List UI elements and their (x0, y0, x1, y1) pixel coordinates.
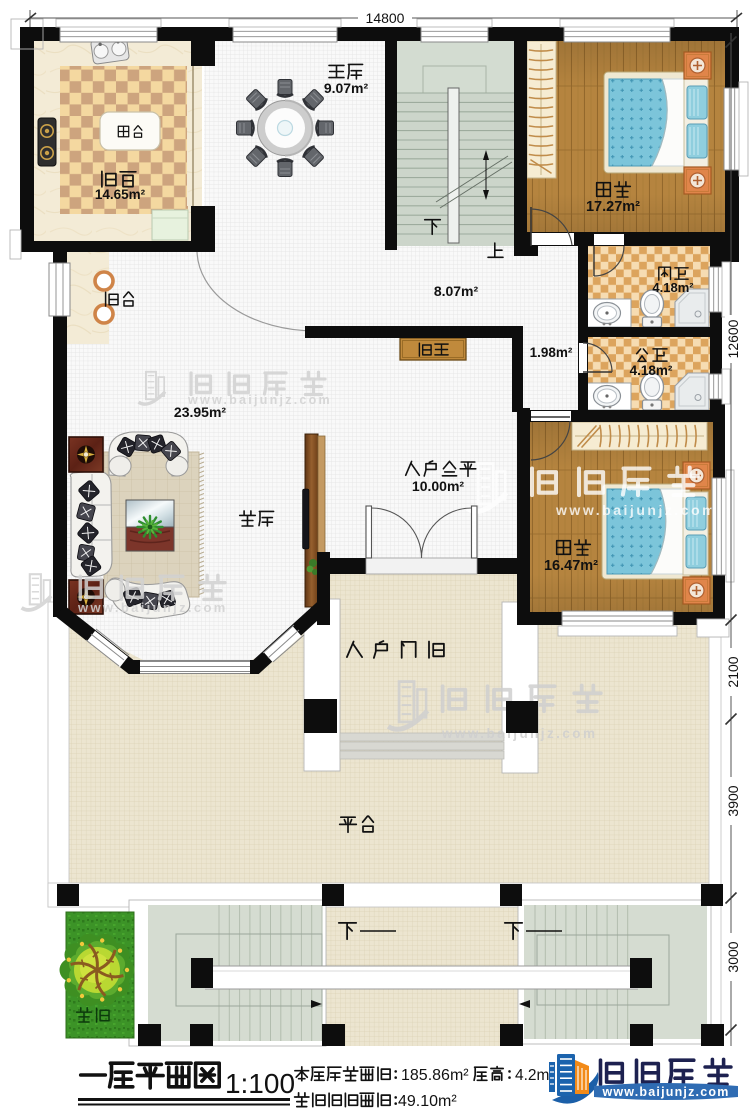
svg-text:16.47m²: 16.47m² (544, 558, 598, 574)
svg-text:14.65m²: 14.65m² (95, 187, 146, 202)
svg-text:www.baijunjz.com: www.baijunjz.com (601, 1085, 729, 1099)
svg-text:4.18m²: 4.18m² (630, 363, 673, 378)
svg-text:12600: 12600 (725, 319, 741, 358)
svg-text:1.98m²: 1.98m² (530, 345, 573, 360)
svg-text:3000: 3000 (725, 941, 741, 972)
svg-text:185.86m²: 185.86m² (401, 1067, 469, 1084)
svg-text:2100: 2100 (725, 656, 741, 687)
svg-text:www.baijunjz.com: www.baijunjz.com (187, 393, 332, 407)
svg-text:www.baijunjz.com: www.baijunjz.com (77, 600, 228, 615)
svg-text:4.18m²: 4.18m² (652, 280, 694, 295)
svg-text:9.07m²: 9.07m² (324, 80, 369, 96)
svg-text:www.baijunjz.com: www.baijunjz.com (555, 502, 717, 518)
svg-text:14800: 14800 (366, 10, 405, 26)
svg-text:3900: 3900 (725, 785, 741, 816)
svg-text:8.07m²: 8.07m² (434, 283, 479, 299)
svg-text:4.2m: 4.2m (515, 1067, 549, 1084)
svg-text:17.27m²: 17.27m² (586, 199, 640, 215)
svg-text:1:100: 1:100 (225, 1068, 295, 1099)
svg-text:49.10m²: 49.10m² (398, 1093, 457, 1110)
svg-text:10.00m²: 10.00m² (412, 478, 464, 494)
